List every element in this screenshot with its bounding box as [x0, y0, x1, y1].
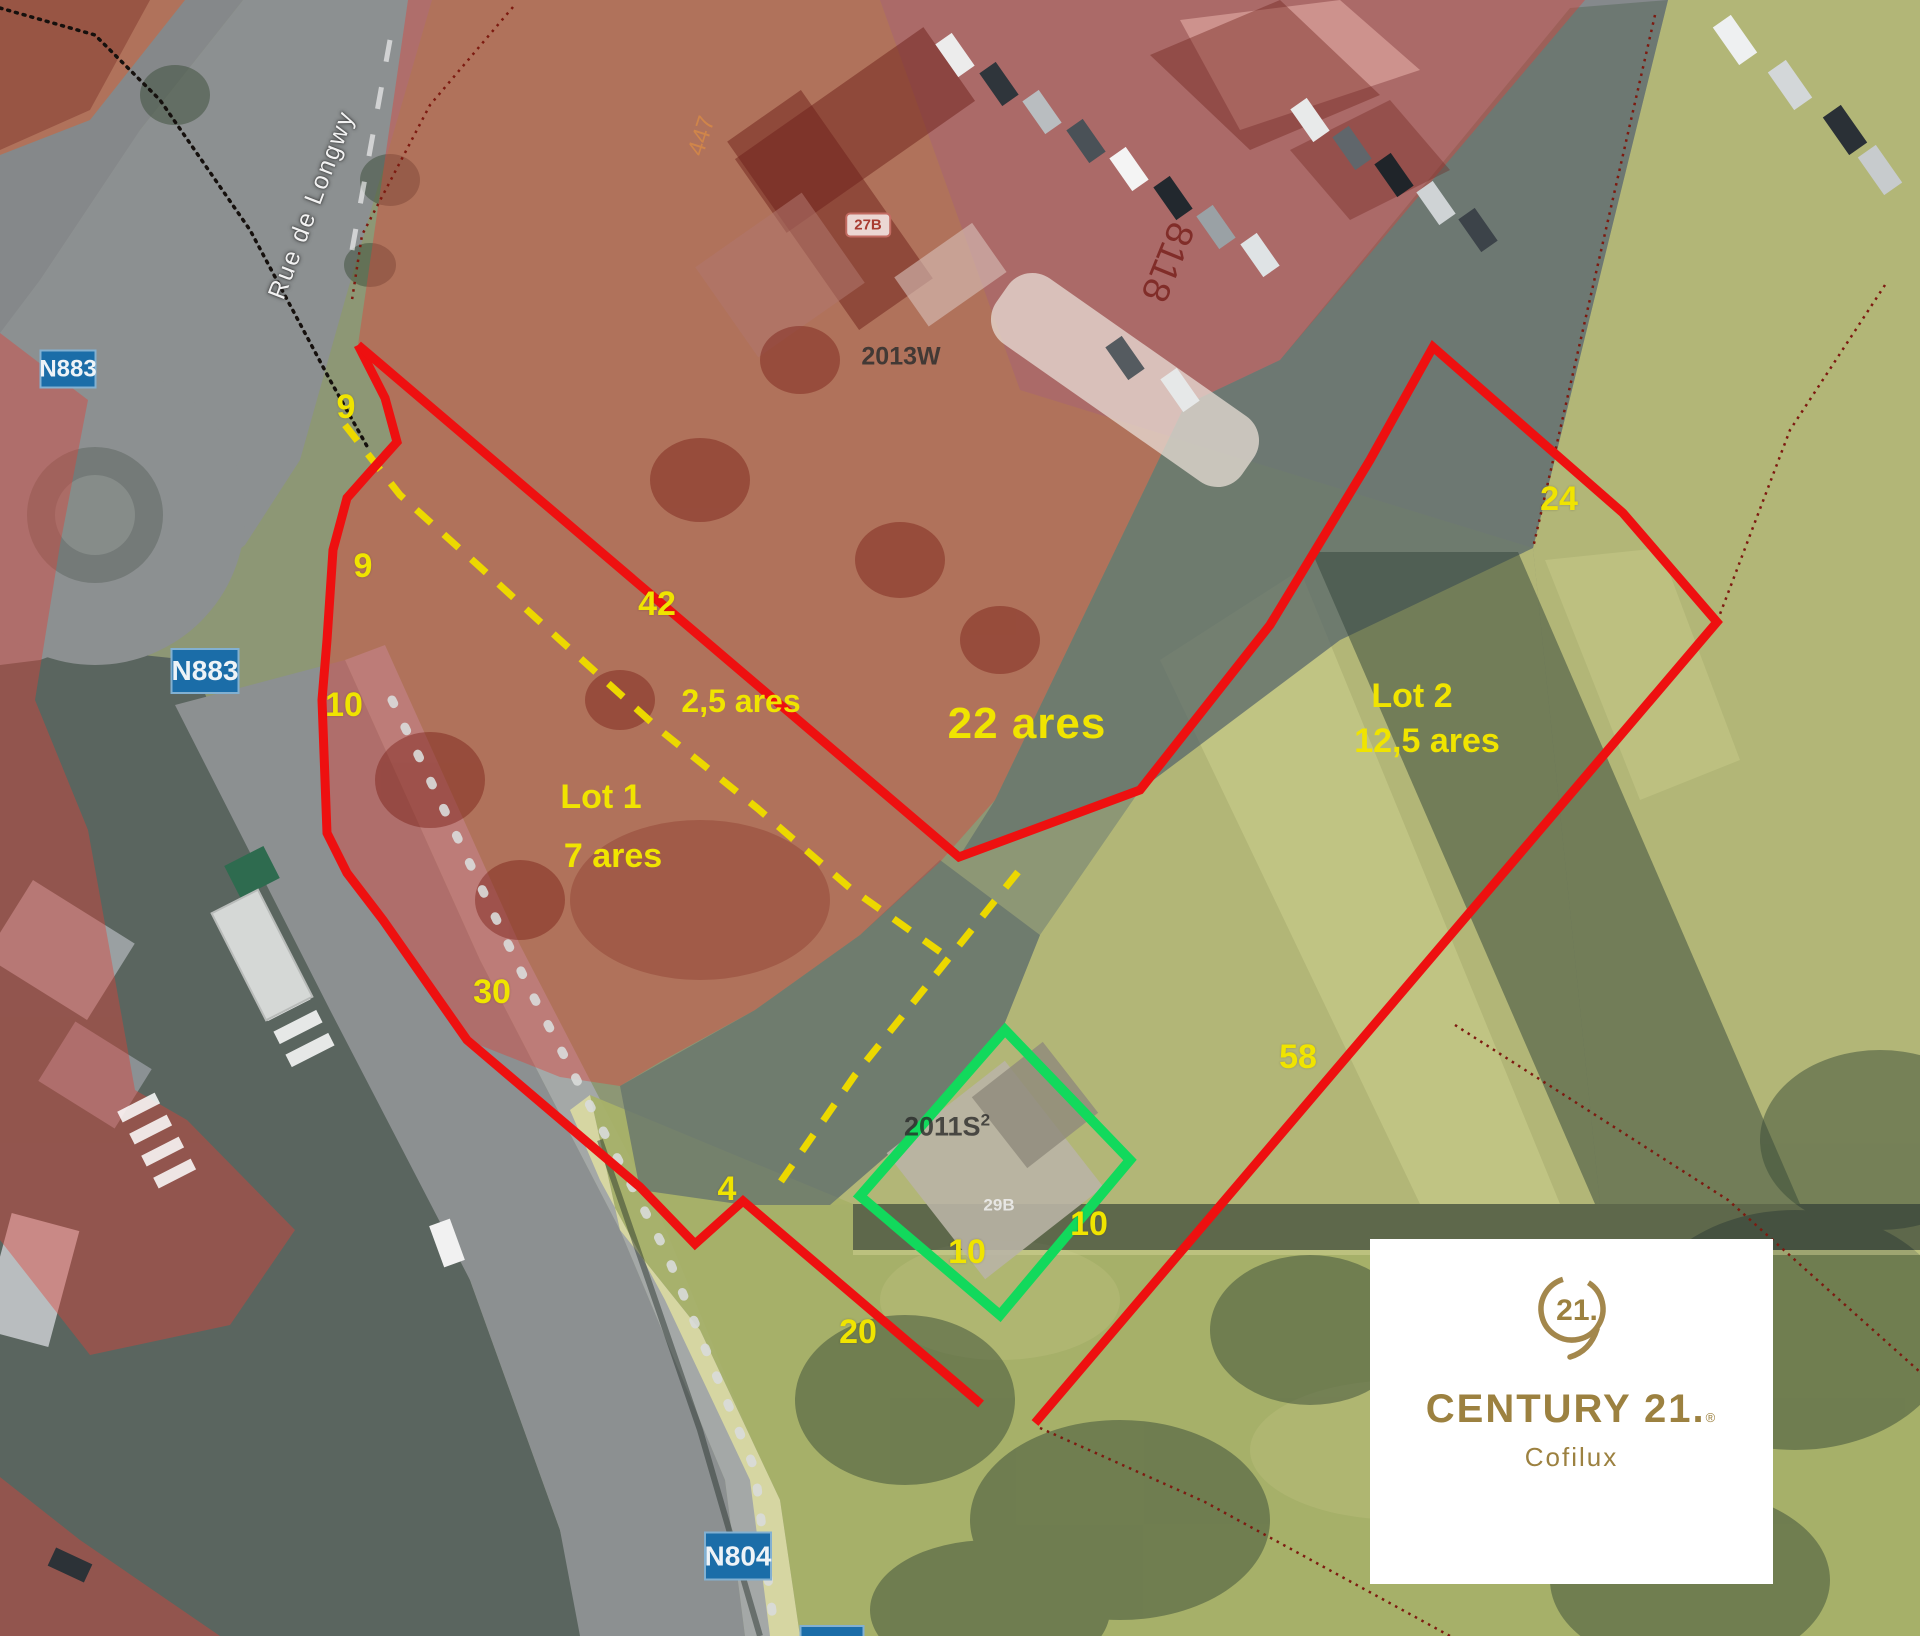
road-badge-n804: N804	[704, 1532, 772, 1581]
parcel-2011s-number: 2011S	[904, 1112, 981, 1142]
strip-area-label: 2,5 ares	[681, 685, 800, 717]
century21-seal-icon: 21.	[1526, 1265, 1618, 1365]
road-badge-n883-top: N883	[40, 350, 97, 389]
century21-seal-number: 21.	[1556, 1294, 1598, 1327]
road-badge-n883-mid: N883	[171, 648, 240, 694]
building-badge-27b: 27B	[845, 213, 891, 238]
dim-label-30: 30	[473, 975, 511, 1009]
dim-label-9-mid: 9	[354, 549, 373, 583]
century21-agency: Cofilux	[1525, 1442, 1618, 1473]
dim-label-4: 4	[718, 1172, 737, 1206]
aerial-map-canvas: Rue de Longwy N883 N883 N804 9 9 10 42 3…	[0, 0, 1920, 1636]
dim-label-42: 42	[638, 587, 676, 621]
parcel-2011s-exponent: 2	[981, 1111, 990, 1130]
dim-label-10-house-left: 10	[948, 1235, 986, 1269]
registered-mark: ®	[1706, 1410, 1718, 1425]
road-badge-partial	[800, 1625, 865, 1636]
dim-label-20: 20	[839, 1315, 877, 1349]
dim-label-10-house-right: 10	[1070, 1207, 1108, 1241]
dim-label-58: 58	[1279, 1040, 1317, 1074]
lot1-area-label: 7 ares	[564, 839, 662, 873]
century21-logo-card: 21. CENTURY 21.® Cofilux	[1370, 1239, 1773, 1584]
century21-brand: CENTURY 21.®	[1426, 1387, 1717, 1432]
dim-label-24: 24	[1540, 482, 1578, 516]
parcel-label-2013w: 2013W	[861, 345, 940, 370]
building-label-29b: 29B	[983, 1197, 1014, 1214]
lot2-area-label: 12,5 ares	[1354, 724, 1500, 758]
dim-label-9-top: 9	[337, 390, 356, 424]
parcel-label-2011s: 2011S2	[904, 1112, 990, 1141]
lot1-label: Lot 1	[560, 780, 641, 814]
lot2-label: Lot 2	[1371, 679, 1452, 713]
dim-label-10-left: 10	[325, 688, 363, 722]
total-area-label: 22 ares	[948, 702, 1107, 746]
century21-brand-text: CENTURY 21.	[1426, 1387, 1706, 1431]
